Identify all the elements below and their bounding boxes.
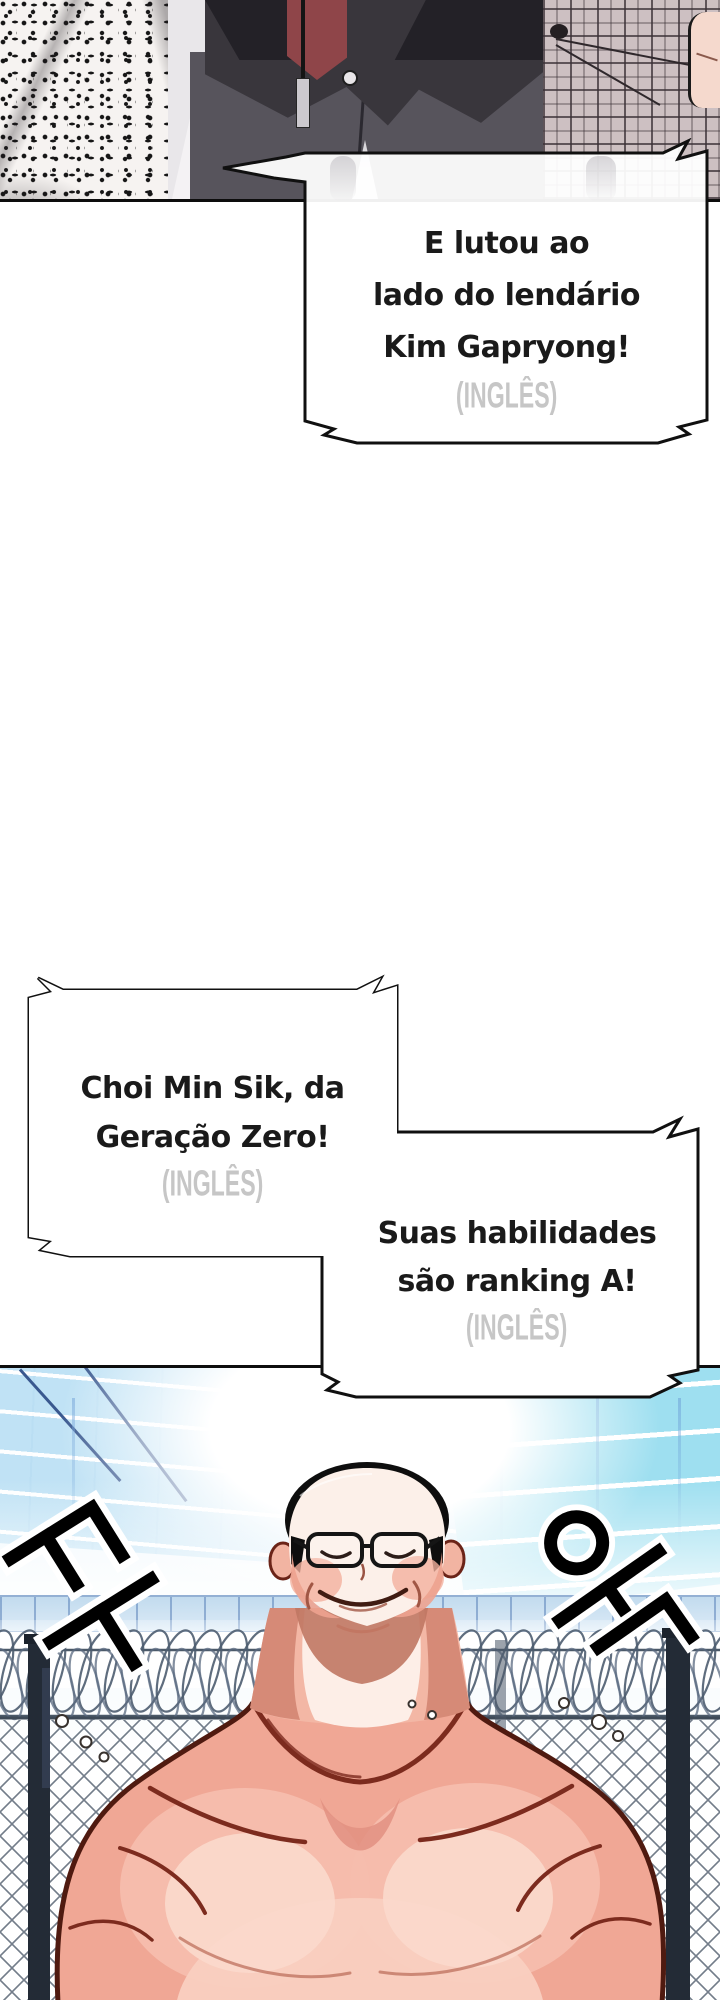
speech-bubble-3: Suas habilidades são ranking A! (INGLÊS) [334, 1210, 700, 1350]
speech-bubble-2: Choi Min Sik, da Geração Zero! (INGLÊS) [27, 1064, 398, 1206]
dialogue-line: Geração Zero! [27, 1113, 398, 1162]
language-note: (INGLÊS) [305, 376, 708, 418]
dialogue-line: são ranking A! [334, 1258, 700, 1306]
webtoon-page: E lutou ao lado do lendário Kim Gapryong… [0, 0, 720, 2000]
dialogue-line: Suas habilidades [334, 1210, 700, 1258]
jacket-button [342, 70, 358, 86]
dialogue-line: lado do lendário [305, 270, 708, 322]
zipper-track [301, 0, 305, 80]
bottom-comic-panel: 꾸 욱 [0, 1365, 720, 2000]
ghosted-panel-object [586, 156, 616, 202]
language-note: (INGLÊS) [334, 1308, 700, 1350]
ghosted-panel-object [330, 156, 356, 202]
zipper-pull [296, 78, 310, 128]
dialogue-line: Choi Min Sik, da [27, 1064, 398, 1113]
speech-bubble-1: E lutou ao lado do lendário Kim Gapryong… [305, 218, 708, 418]
dialogue-line: Kim Gapryong! [305, 322, 708, 374]
plaid-shirt-knot [550, 24, 568, 39]
dialogue-line: E lutou ao [305, 218, 708, 270]
leopard-shirt-shading [0, 0, 168, 199]
bottom-panel-art [0, 1368, 720, 2000]
language-note: (INGLÊS) [27, 1164, 398, 1206]
